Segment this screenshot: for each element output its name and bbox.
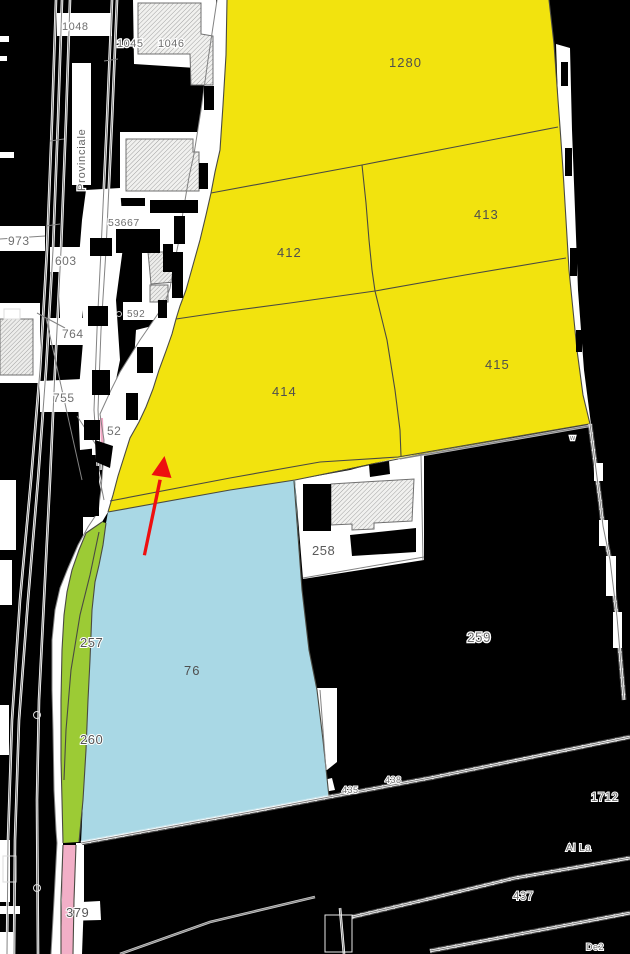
svg-text:1712: 1712 — [591, 792, 619, 804]
svg-text:1280: 1280 — [389, 55, 422, 70]
svg-text:w: w — [569, 435, 576, 442]
svg-text:437: 437 — [513, 891, 534, 903]
svg-text:1048: 1048 — [62, 21, 88, 33]
svg-text:1045: 1045 — [117, 38, 143, 50]
svg-text:415: 415 — [485, 357, 510, 372]
svg-text:260: 260 — [80, 732, 103, 747]
svg-text:258: 258 — [312, 543, 335, 558]
svg-text:973: 973 — [8, 234, 30, 248]
svg-text:Al La: Al La — [566, 843, 591, 854]
svg-text:259: 259 — [467, 630, 491, 645]
svg-text:412: 412 — [277, 245, 302, 260]
svg-text:414: 414 — [272, 384, 297, 399]
svg-text:764: 764 — [62, 327, 84, 341]
svg-text:1046: 1046 — [158, 38, 184, 50]
svg-text:De2: De2 — [586, 942, 604, 952]
svg-text:413: 413 — [474, 207, 499, 222]
svg-text:438: 438 — [385, 775, 402, 785]
svg-text:379: 379 — [66, 905, 89, 920]
svg-text:53667: 53667 — [108, 217, 140, 229]
svg-text:Provinciale: Provinciale — [76, 128, 88, 191]
svg-text:52: 52 — [107, 424, 121, 438]
svg-text:755: 755 — [53, 391, 75, 405]
svg-text:592: 592 — [127, 309, 145, 320]
svg-text:257: 257 — [80, 635, 103, 650]
svg-text:603: 603 — [55, 254, 77, 268]
svg-text:76: 76 — [184, 663, 200, 678]
svg-text:435: 435 — [342, 785, 359, 795]
